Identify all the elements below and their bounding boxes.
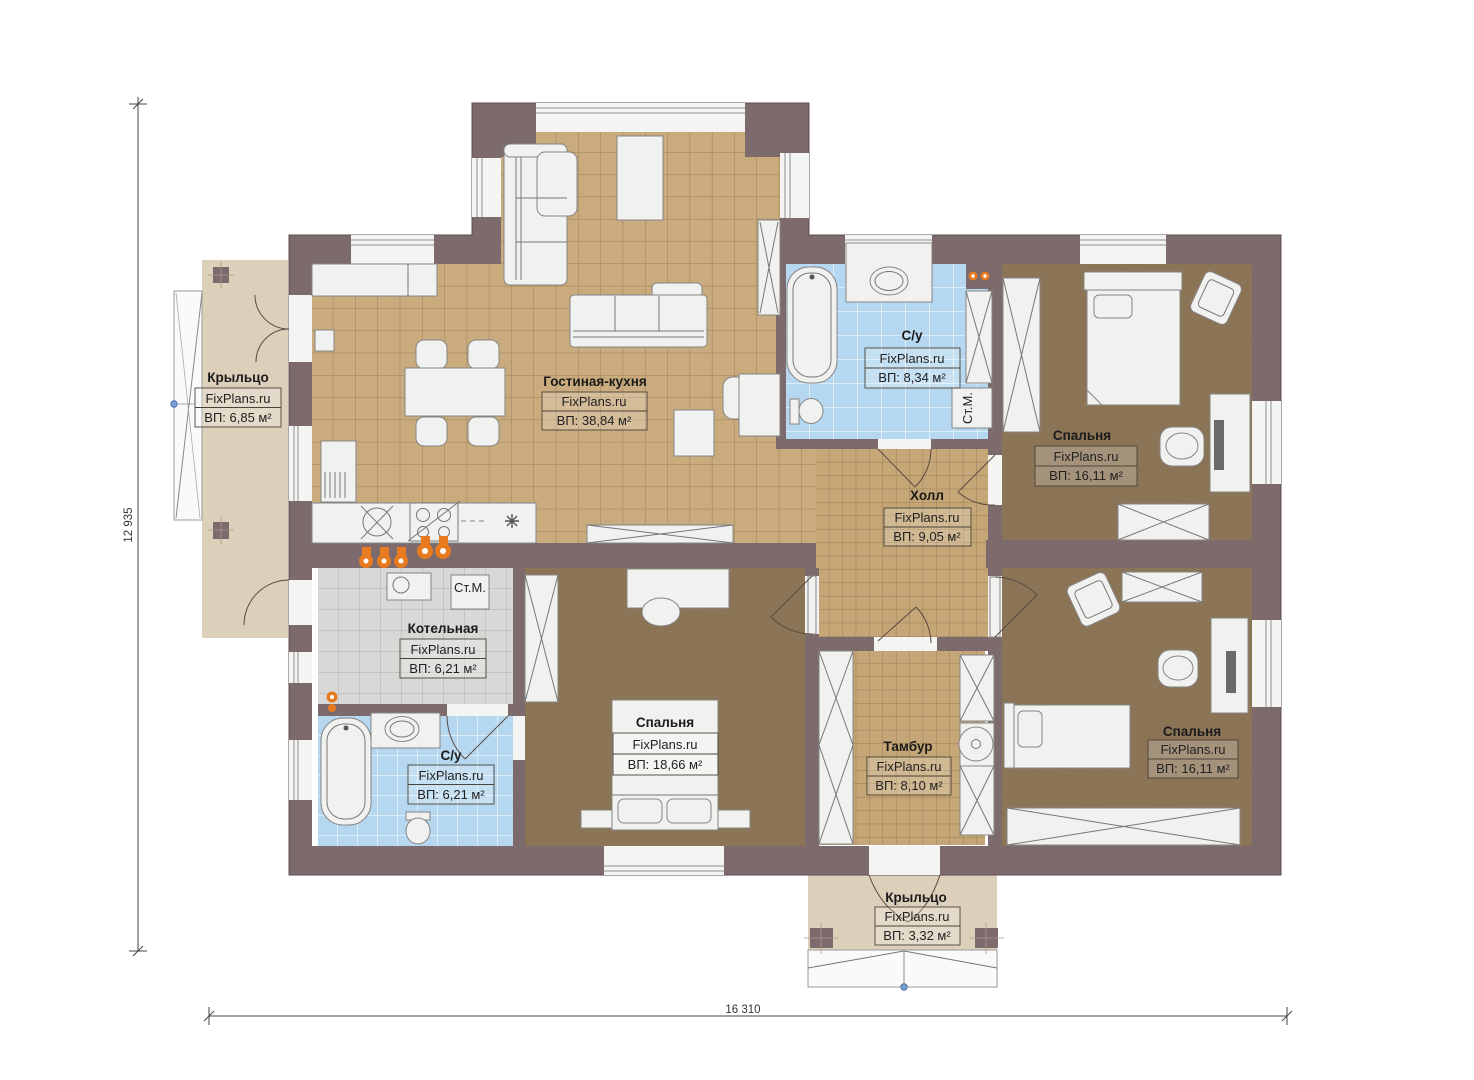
svg-text:FixPlans.ru: FixPlans.ru bbox=[561, 394, 626, 409]
svg-text:ВП: 3,32 м²: ВП: 3,32 м² bbox=[883, 928, 951, 943]
svg-text:FixPlans.ru: FixPlans.ru bbox=[410, 642, 475, 657]
svg-text:С/у: С/у bbox=[901, 328, 923, 343]
svg-text:ВП: 16,11 м²: ВП: 16,11 м² bbox=[1156, 761, 1230, 776]
svg-text:FixPlans.ru: FixPlans.ru bbox=[894, 510, 959, 525]
svg-text:FixPlans.ru: FixPlans.ru bbox=[205, 391, 270, 406]
svg-text:Спальня: Спальня bbox=[1053, 428, 1111, 443]
svg-text:ВП: 8,10 м²: ВП: 8,10 м² bbox=[875, 778, 943, 793]
svg-text:FixPlans.ru: FixPlans.ru bbox=[884, 909, 949, 924]
svg-text:Крыльцо: Крыльцо bbox=[885, 890, 946, 905]
svg-text:ВП: 16,11 м²: ВП: 16,11 м² bbox=[1049, 468, 1123, 483]
svg-text:ВП: 6,85 м²: ВП: 6,85 м² bbox=[204, 410, 272, 425]
svg-text:FixPlans.ru: FixPlans.ru bbox=[1160, 742, 1225, 757]
svg-text:ВП: 9,05 м²: ВП: 9,05 м² bbox=[893, 529, 961, 544]
svg-text:FixPlans.ru: FixPlans.ru bbox=[632, 737, 697, 752]
svg-text:12 935: 12 935 bbox=[123, 507, 135, 542]
svg-text:Тамбур: Тамбур bbox=[884, 739, 933, 754]
svg-text:Холл: Холл bbox=[910, 488, 944, 503]
svg-text:16 310: 16 310 bbox=[725, 1004, 760, 1016]
svg-text:С/у: С/у bbox=[440, 748, 462, 763]
svg-text:FixPlans.ru: FixPlans.ru bbox=[1053, 449, 1118, 464]
svg-text:ВП: 6,21 м²: ВП: 6,21 м² bbox=[417, 787, 485, 802]
svg-text:ВП: 18,66 м²: ВП: 18,66 м² bbox=[628, 757, 703, 772]
svg-text:FixPlans.ru: FixPlans.ru bbox=[418, 768, 483, 783]
svg-text:FixPlans.ru: FixPlans.ru bbox=[879, 351, 944, 366]
svg-text:Спальня: Спальня bbox=[636, 715, 694, 730]
svg-text:Ст.М.: Ст.М. bbox=[960, 392, 975, 424]
svg-text:Гостиная-кухня: Гостиная-кухня bbox=[543, 374, 646, 389]
svg-text:Крыльцо: Крыльцо bbox=[207, 370, 268, 385]
svg-text:FixPlans.ru: FixPlans.ru bbox=[876, 759, 941, 774]
svg-text:ВП: 38,84 м²: ВП: 38,84 м² bbox=[557, 413, 632, 428]
svg-text:Спальня: Спальня bbox=[1163, 724, 1221, 739]
svg-text:ВП: 8,34 м²: ВП: 8,34 м² bbox=[878, 370, 946, 385]
svg-text:Ст.М.: Ст.М. bbox=[454, 580, 486, 595]
svg-text:Котельная: Котельная bbox=[408, 621, 479, 636]
svg-text:ВП: 6,21 м²: ВП: 6,21 м² bbox=[409, 661, 477, 676]
